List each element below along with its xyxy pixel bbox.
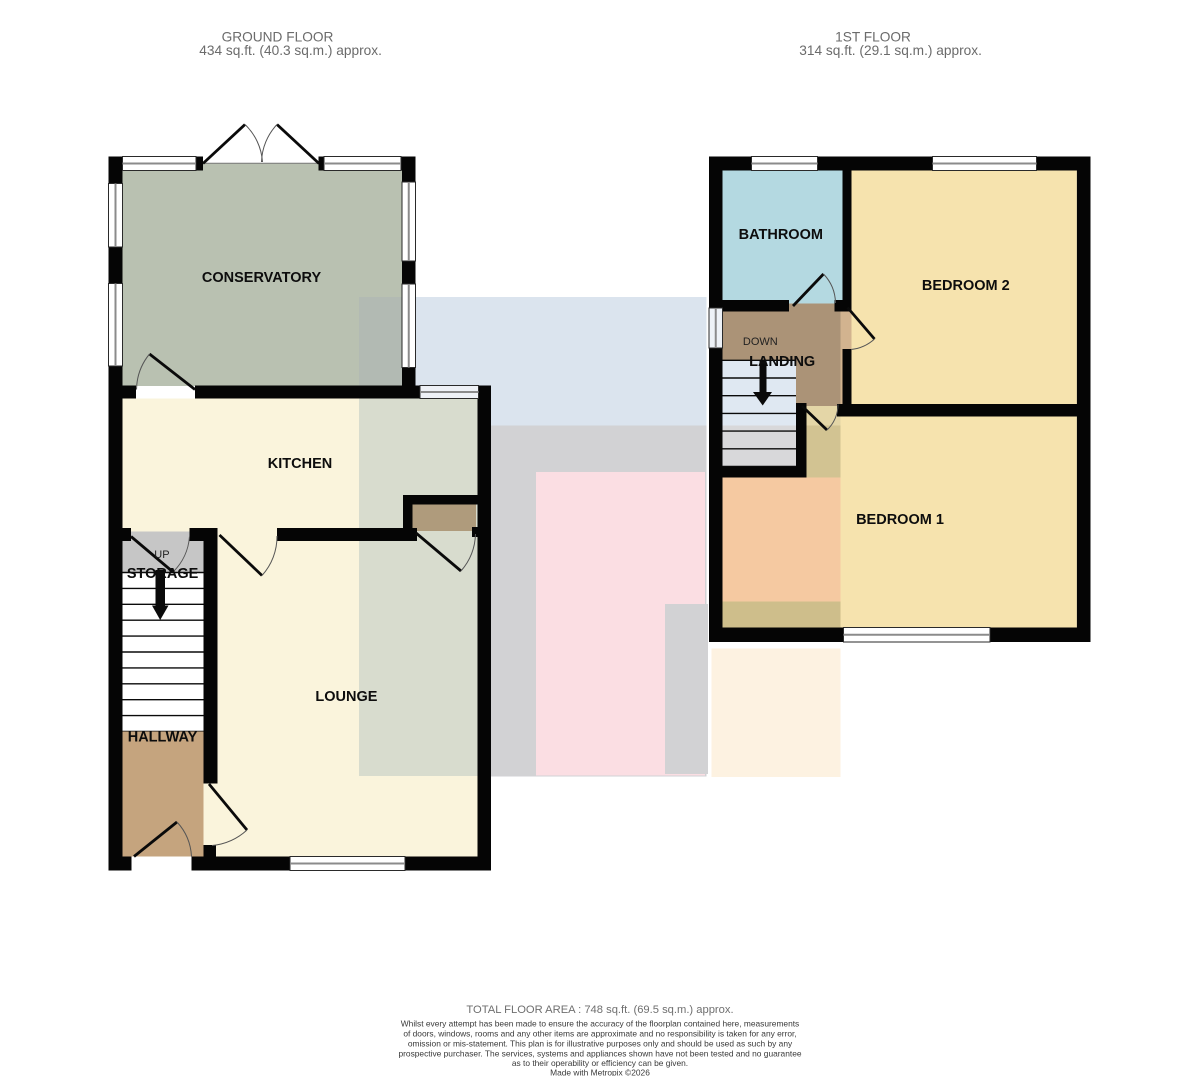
svg-text:of doors, windows, rooms and a: of doors, windows, rooms and any other i… — [403, 1029, 796, 1039]
svg-text:UP: UP — [154, 549, 169, 561]
svg-text:TOTAL FLOOR AREA : 748 sq.ft.: TOTAL FLOOR AREA : 748 sq.ft. (69.5 sq.m… — [466, 1004, 733, 1016]
svg-text:DOWN: DOWN — [743, 336, 778, 348]
svg-text:HALLWAY: HALLWAY — [128, 730, 198, 746]
svg-text:BEDROOM 2: BEDROOM 2 — [922, 278, 1010, 294]
svg-text:KITCHEN: KITCHEN — [268, 456, 332, 472]
svg-text:LANDING: LANDING — [749, 354, 815, 370]
svg-text:LOUNGE: LOUNGE — [315, 689, 377, 705]
svg-text:434 sq.ft. (40.3 sq.m.) approx: 434 sq.ft. (40.3 sq.m.) approx. — [199, 43, 382, 58]
svg-text:CONSERVATORY: CONSERVATORY — [202, 270, 322, 286]
svg-text:omission or mis-statement. Thi: omission or mis-statement. This plan is … — [408, 1038, 793, 1048]
svg-text:Whilst every attempt has been: Whilst every attempt has been made to en… — [401, 1019, 800, 1029]
svg-text:prospective purchaser. The ser: prospective purchaser. The services, sys… — [398, 1048, 801, 1058]
svg-text:STORAGE: STORAGE — [127, 566, 199, 582]
svg-text:as to their operability or eff: as to their operability or efficiency ca… — [512, 1058, 688, 1068]
svg-text:314 sq.ft. (29.1 sq.m.) approx: 314 sq.ft. (29.1 sq.m.) approx. — [799, 43, 982, 58]
svg-text:BATHROOM: BATHROOM — [739, 227, 823, 243]
svg-text:BEDROOM 1: BEDROOM 1 — [856, 512, 944, 528]
svg-text:Made with Metropix ©2026: Made with Metropix ©2026 — [550, 1068, 650, 1076]
